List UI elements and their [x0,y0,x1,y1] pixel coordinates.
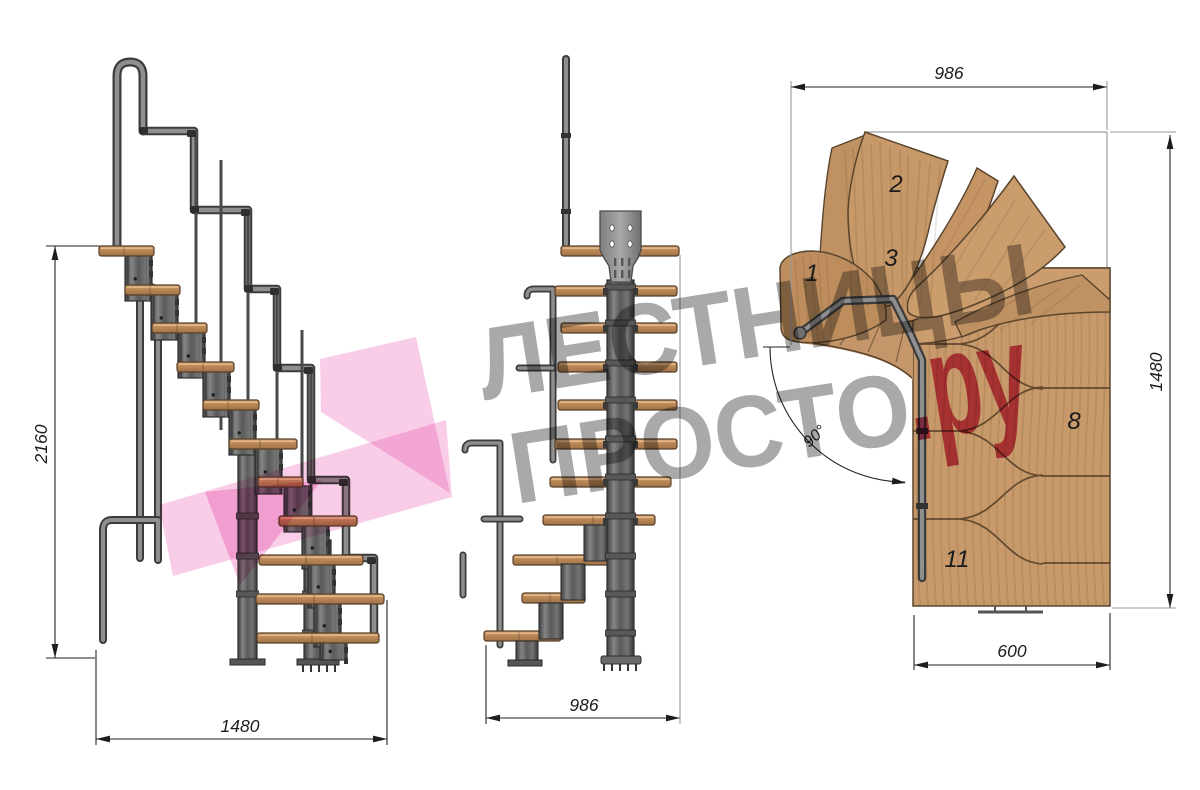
svg-text:986: 986 [934,63,963,83]
svg-text:.ру: .ру [892,289,1040,472]
svg-text:1480: 1480 [221,716,260,736]
svg-text:11: 11 [945,546,970,573]
svg-text:2: 2 [888,171,902,198]
svg-text:986: 986 [569,695,598,715]
svg-text:8: 8 [1067,408,1081,435]
svg-text:600: 600 [997,641,1026,661]
svg-text:1480: 1480 [1146,352,1166,391]
svg-text:2160: 2160 [31,424,51,464]
